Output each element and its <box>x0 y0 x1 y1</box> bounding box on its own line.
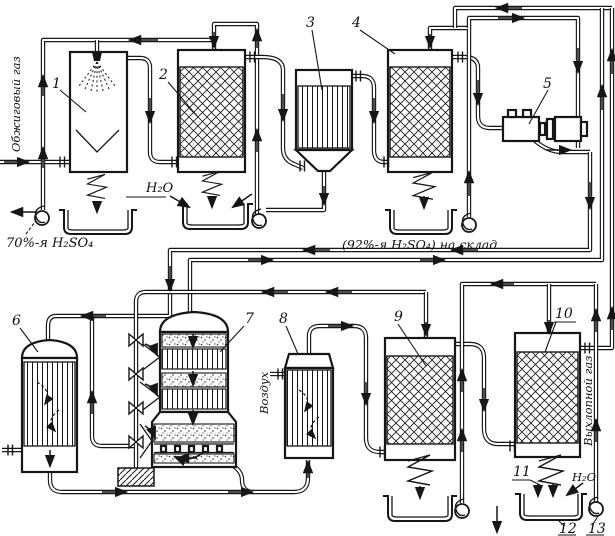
catalyst-bed-2 <box>162 373 226 387</box>
pipe-main-gas-down <box>48 152 590 340</box>
seal-zigzag-4 <box>413 172 435 199</box>
equip-num-5: 5 <box>543 76 552 92</box>
equip-num-6: 6 <box>12 313 21 329</box>
vessel-3-wet-electrostatic-precipitator <box>296 70 352 171</box>
label-water-top: H₂O <box>145 181 174 196</box>
vessel-4-drying-tower <box>388 50 452 172</box>
blower-5-turbocompressor <box>503 110 587 141</box>
equip-num-8: 8 <box>279 311 288 327</box>
seal-zigzag-1 <box>87 174 106 198</box>
equip-num-7: 7 <box>245 311 254 327</box>
ground-support <box>118 468 154 486</box>
flow-arrow <box>567 483 583 495</box>
pipe-tower2-esp <box>245 57 303 168</box>
equip-num-13: 13 <box>588 521 606 536</box>
pipe-tower1-tower2 <box>127 58 178 162</box>
label-acid-70: 70%-я H₂SO₄ <box>6 236 93 251</box>
equip-num-2: 2 <box>158 67 168 83</box>
pipe-esp-drain <box>266 172 324 210</box>
tube-layer-2 <box>162 389 226 409</box>
diagram-canvas: Обжиговый газ 70%-я H₂SO₄ H₂O (92%-я H₂S… <box>0 0 615 536</box>
equip-num-1: 1 <box>52 76 61 92</box>
pipe-main-gas-down <box>48 152 590 340</box>
label-roasting-gas: Обжиговый газ <box>9 56 23 152</box>
vessel-2-packed-washing-tower <box>178 50 245 172</box>
seal-zigzag-2 <box>202 171 221 195</box>
process-flow-diagram: Обжиговый газ 70%-я H₂SO₄ H₂O (92%-я H₂S… <box>0 0 615 536</box>
vessel-10-monohydrate-absorber <box>515 333 580 457</box>
equip-num-11: 11 <box>513 464 531 480</box>
pipe-esp-drain <box>266 172 324 210</box>
pipe-exchanger-loop <box>92 316 134 446</box>
label-air: Воздух <box>257 371 271 415</box>
equip-num-12: 12 <box>559 521 577 536</box>
vessel-7-contact-apparatus <box>152 312 236 467</box>
motor <box>555 117 581 141</box>
label-water-bottom: H₂O <box>571 470 597 484</box>
flow-arrow <box>170 196 189 207</box>
equip-num-4: 4 <box>351 15 361 31</box>
pipe-tower2-esp <box>245 57 303 168</box>
pipe-esp-tower4 <box>352 76 388 162</box>
equip-num-9: 9 <box>394 309 403 325</box>
seal-zigzag-11 <box>539 455 563 485</box>
vessel-8-heat-exchanger <box>285 354 333 458</box>
pipe-esp-tower4 <box>352 76 388 162</box>
equip-num-3: 3 <box>306 15 315 31</box>
pipe-tower1-tower2 <box>127 58 178 162</box>
tube-layer-1 <box>162 349 226 369</box>
equip-num-10: 10 <box>555 306 573 322</box>
catalyst-bed-3 <box>154 424 234 442</box>
label-exhaust-gas: Выхлопной газ <box>581 356 595 447</box>
catalyst-bed-1 <box>162 334 226 347</box>
pipe-exchanger-loop <box>92 316 134 446</box>
vessel-1-hollow-washing-tower <box>70 52 127 172</box>
